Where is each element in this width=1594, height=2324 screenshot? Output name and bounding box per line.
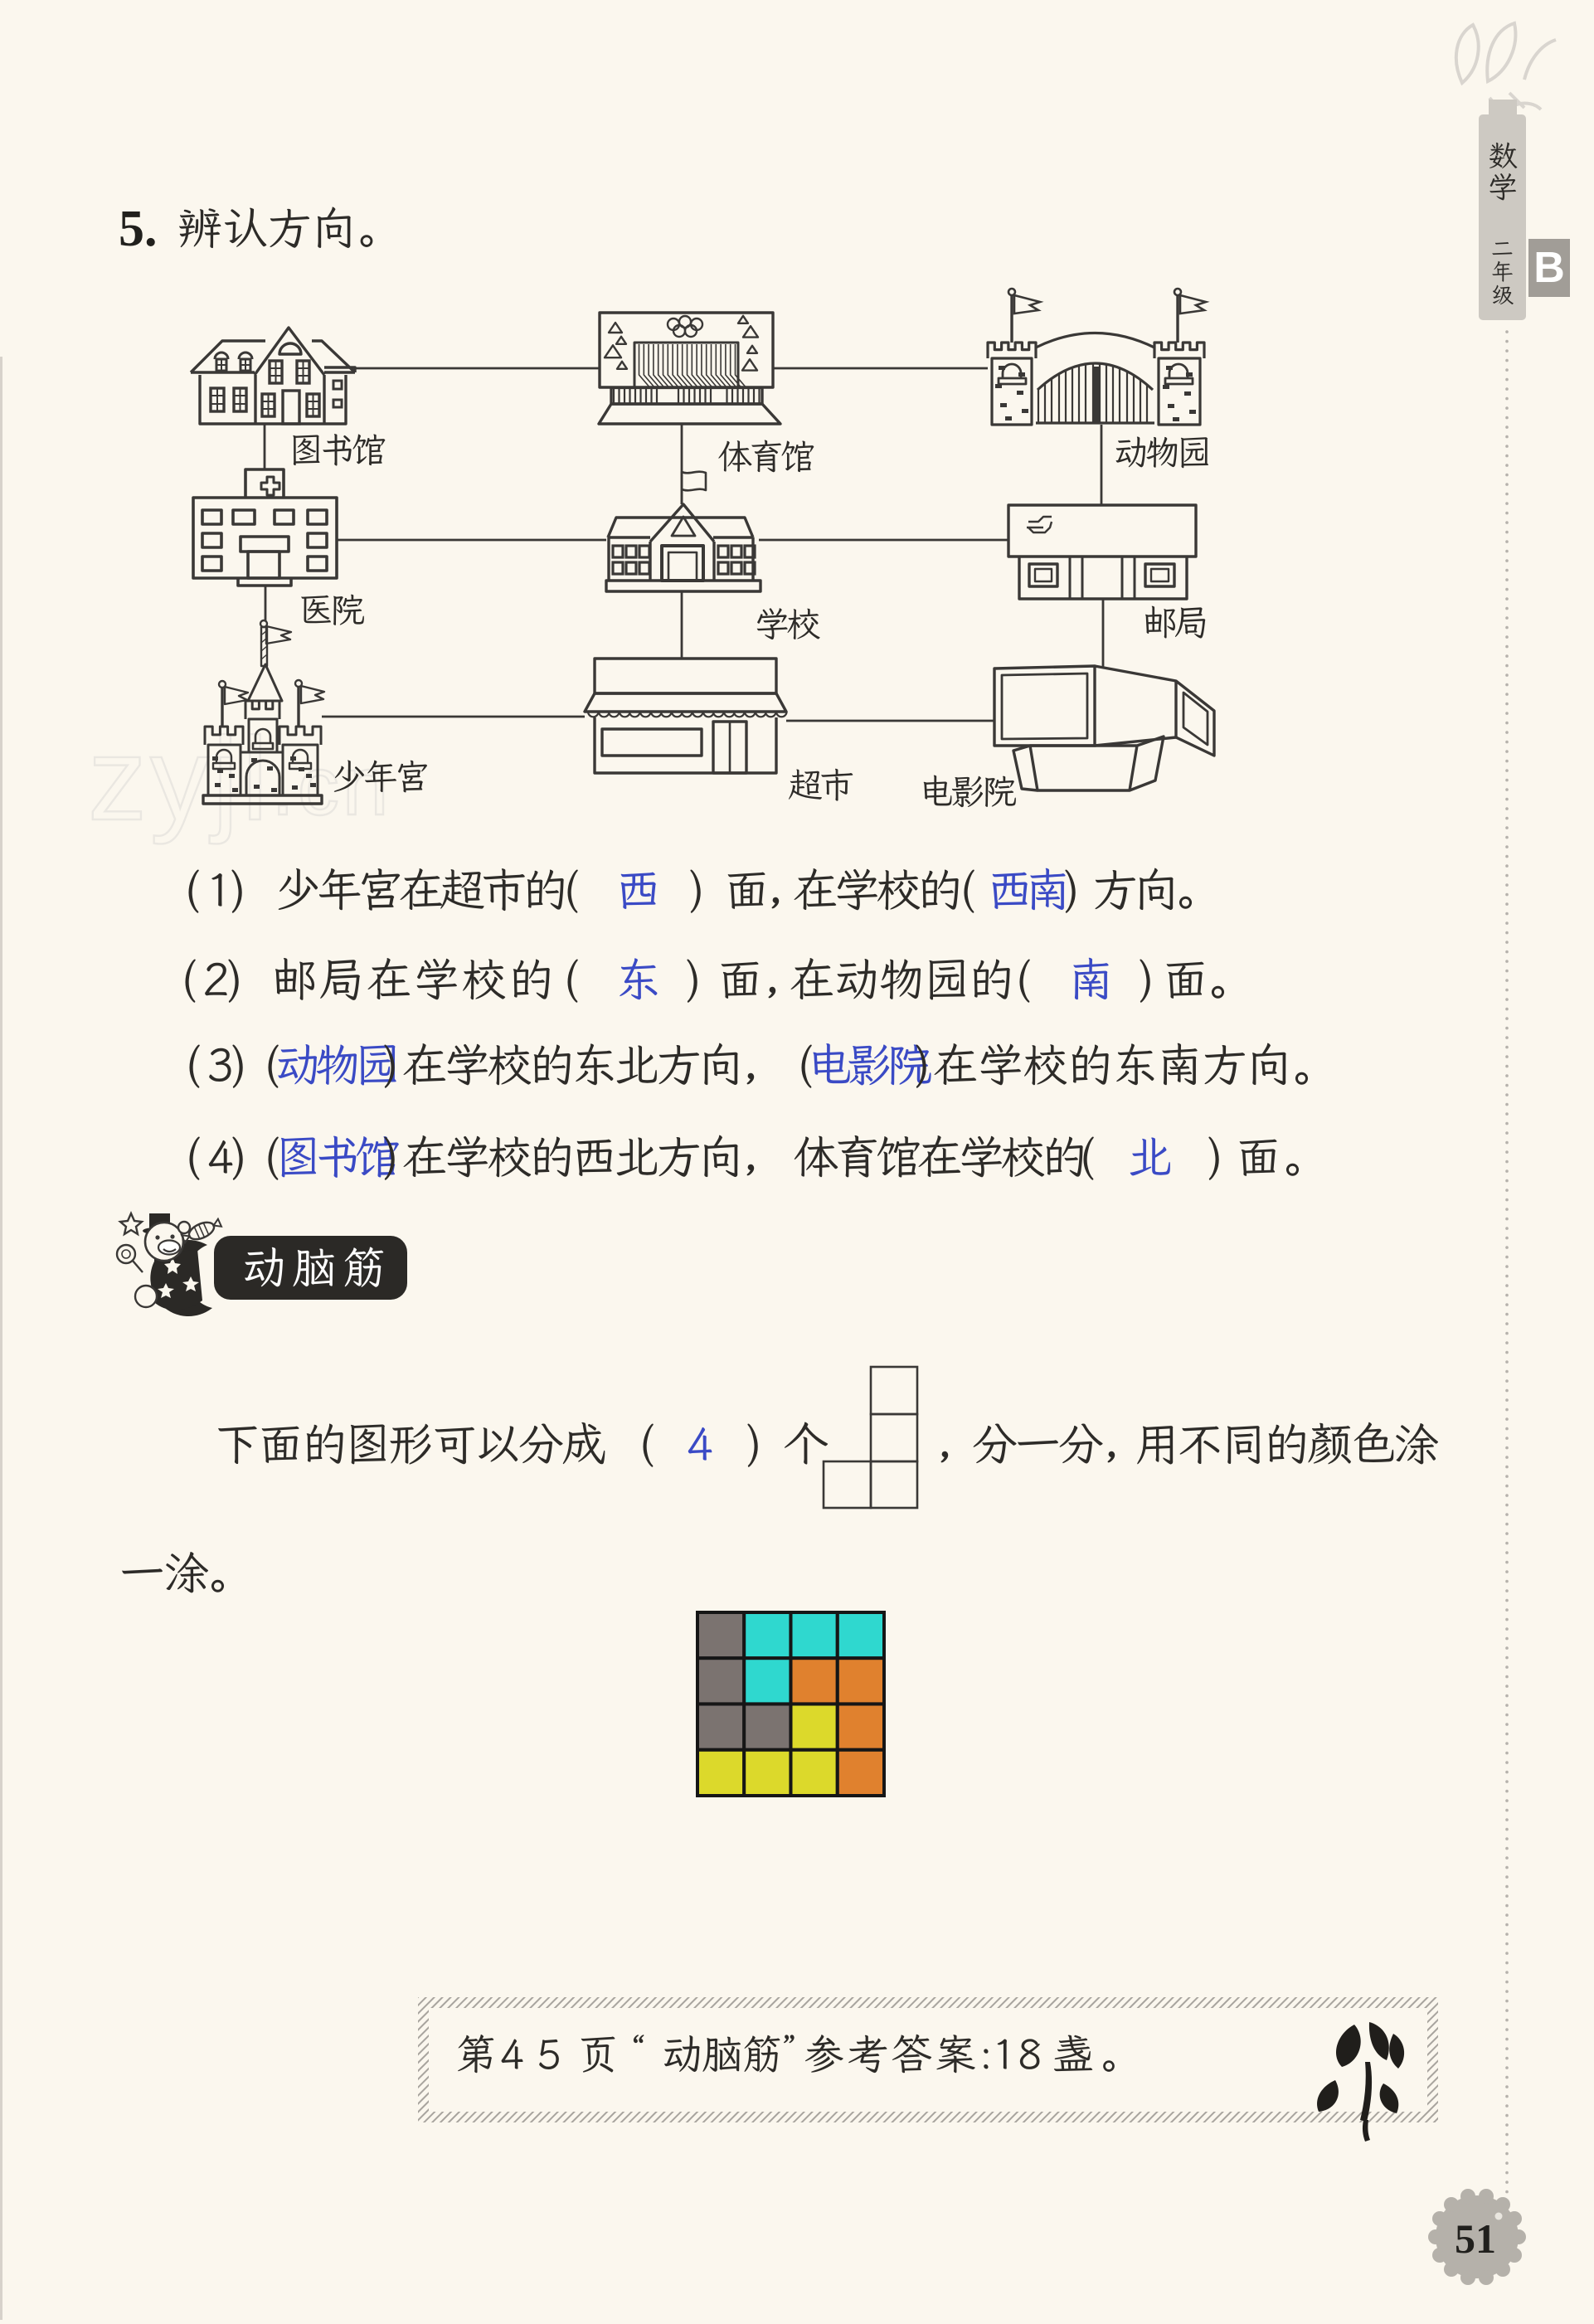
svg-text:B: B bbox=[1533, 244, 1565, 292]
svg-text:5.: 5. bbox=[119, 201, 158, 257]
svg-text:51: 51 bbox=[1455, 2215, 1496, 2262]
